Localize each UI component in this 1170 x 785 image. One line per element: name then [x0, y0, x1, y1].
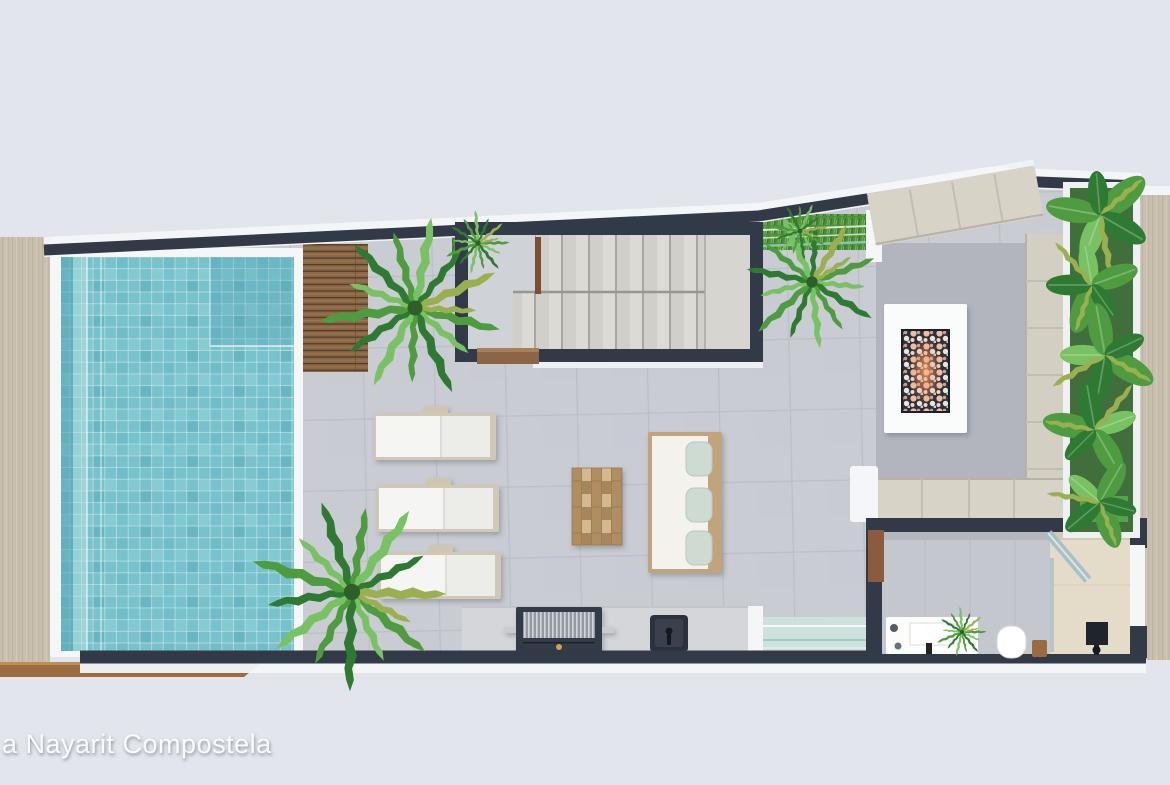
perimeter-wall-bottom: [80, 657, 1146, 667]
pool-step-edge: [61, 257, 73, 651]
sun-lounger: [377, 478, 499, 532]
swimming-pool: [50, 248, 303, 657]
sectional-armrest: [850, 466, 878, 522]
sink-faucet: [666, 628, 673, 635]
grill-grate: [523, 612, 595, 638]
vanity-faucet: [926, 643, 932, 654]
mint-pillow: [686, 488, 712, 522]
wood-post: [868, 530, 884, 582]
glass-panel: [763, 617, 868, 652]
sun-lounger: [374, 406, 496, 460]
coffee-table: [572, 468, 622, 545]
fire-pit: [884, 304, 967, 433]
mint-pillow: [686, 531, 712, 565]
grill-emblem: [556, 644, 562, 650]
tanning-shelf: [210, 257, 294, 346]
sectional-bottom-cushions: [876, 478, 1066, 520]
pool-steps: [73, 257, 87, 651]
kitchen-sink: [650, 615, 688, 652]
white-column: [748, 606, 763, 654]
left-boundary-wall: [0, 237, 50, 664]
toilet: [997, 626, 1026, 658]
sofa: [648, 432, 722, 573]
villa-floorplan-render: a Nayarit Compostela: [0, 0, 1170, 785]
stair-landing: [705, 235, 750, 349]
right-boundary-wall: [1141, 195, 1170, 660]
bbq-grill: [504, 607, 614, 654]
wood-deck: [303, 244, 368, 372]
bathroom-wall-right: [1130, 626, 1147, 658]
floorplan-svg: [0, 0, 1170, 785]
right-parapet-cap: [1141, 186, 1170, 196]
wood-stool: [1032, 640, 1047, 657]
mint-pillow: [686, 442, 712, 476]
stair-handrail: [535, 237, 541, 294]
watermark-text: a Nayarit Compostela: [2, 729, 272, 760]
